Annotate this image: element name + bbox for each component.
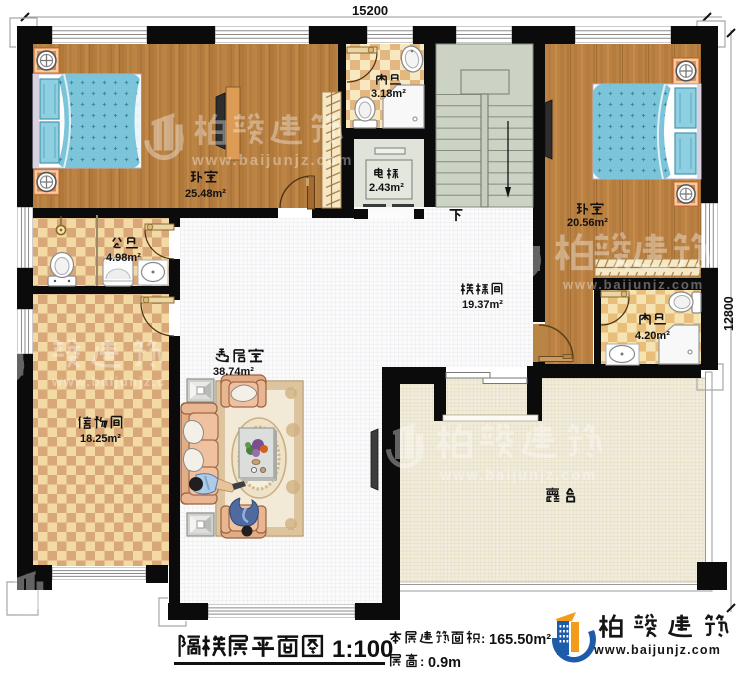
svg-text:38.74m²: 38.74m² bbox=[213, 366, 254, 378]
svg-text:25.48m²: 25.48m² bbox=[185, 188, 226, 200]
svg-text:www.baijunjz.com: www.baijunjz.com bbox=[439, 468, 597, 484]
svg-text:www.baijunjz.c: www.baijunjz.c bbox=[51, 374, 166, 389]
svg-text::: : bbox=[481, 631, 485, 646]
svg-text:www.baijunjz.com: www.baijunjz.com bbox=[191, 152, 353, 169]
svg-text:15200: 15200 bbox=[352, 3, 388, 18]
svg-text:20.56m²: 20.56m² bbox=[567, 217, 608, 229]
svg-text:165.50m²: 165.50m² bbox=[489, 632, 551, 648]
svg-text:4.98m²: 4.98m² bbox=[106, 252, 141, 264]
svg-text:18.25m²: 18.25m² bbox=[80, 433, 121, 445]
svg-text:3.18m²: 3.18m² bbox=[371, 88, 406, 100]
svg-text:1:100: 1:100 bbox=[332, 636, 393, 663]
svg-text:4.20m²: 4.20m² bbox=[635, 330, 670, 342]
svg-text:www.baijunjz.com: www.baijunjz.com bbox=[593, 643, 721, 657]
svg-text:12800: 12800 bbox=[722, 296, 736, 331]
svg-text:2.43m²: 2.43m² bbox=[369, 182, 404, 194]
svg-text:0.9m: 0.9m bbox=[428, 655, 461, 671]
svg-text:19.37m²: 19.37m² bbox=[462, 299, 503, 311]
svg-text::: : bbox=[420, 654, 424, 669]
svg-text:www.baijunjz.com: www.baijunjz.com bbox=[562, 277, 704, 292]
